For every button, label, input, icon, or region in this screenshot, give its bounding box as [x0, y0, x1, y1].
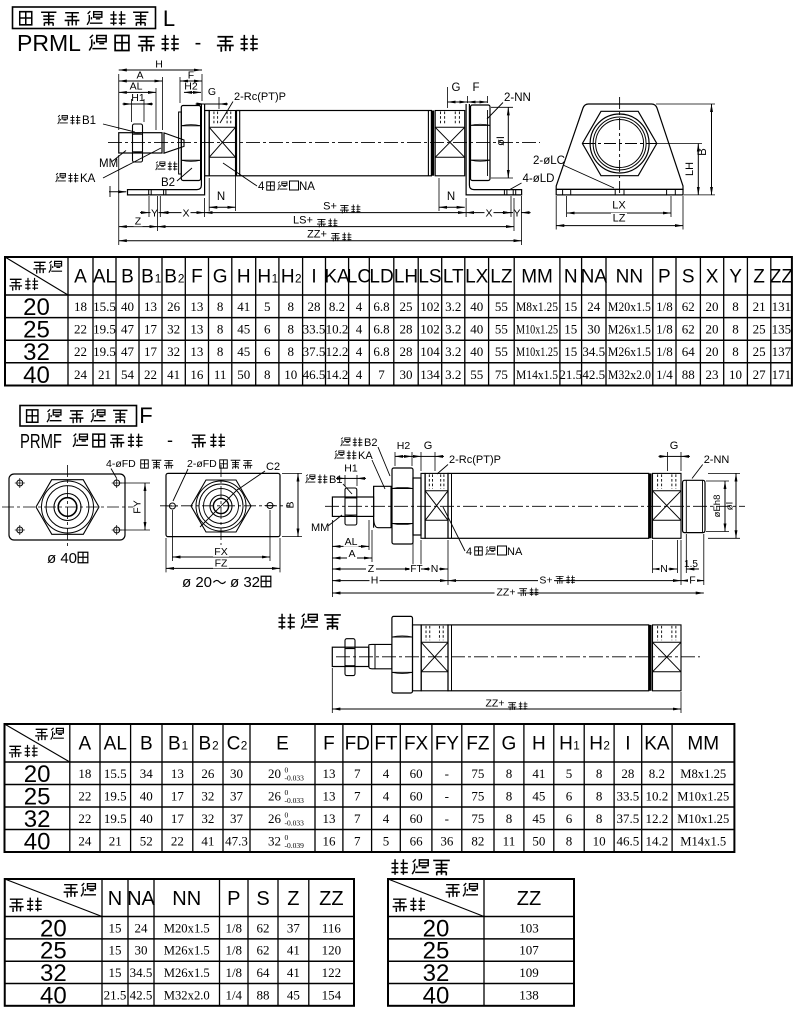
svg-text:G: G: [502, 734, 517, 755]
svg-text:Z: Z: [753, 267, 765, 288]
svg-text:11: 11: [503, 833, 516, 848]
svg-text:6.8: 6.8: [373, 322, 389, 337]
svg-text:B1: B1: [82, 115, 96, 127]
svg-text:F: F: [472, 82, 479, 94]
svg-text:40: 40: [24, 828, 51, 855]
svg-text:LX: LX: [612, 200, 626, 212]
svg-text:H: H: [589, 734, 603, 755]
svg-text:8: 8: [288, 344, 295, 359]
svg-text:28: 28: [400, 344, 413, 359]
svg-text:X: X: [485, 208, 492, 220]
svg-text:21: 21: [753, 299, 766, 314]
svg-text:62: 62: [682, 299, 695, 314]
svg-text:50: 50: [532, 833, 545, 848]
svg-text:FT: FT: [374, 734, 398, 755]
svg-text:8: 8: [566, 833, 573, 848]
svg-text:H: H: [155, 59, 163, 71]
svg-text:S+: S+: [323, 201, 337, 213]
svg-text:8.2: 8.2: [329, 299, 345, 314]
svg-text:64: 64: [257, 965, 271, 980]
svg-text:8.2: 8.2: [649, 766, 665, 781]
svg-text:4: 4: [383, 766, 390, 781]
svg-text:LH: LH: [394, 267, 418, 288]
svg-text:1/8: 1/8: [656, 299, 673, 314]
svg-text:26: 26: [167, 299, 181, 314]
svg-text:I: I: [625, 734, 630, 755]
svg-text:64: 64: [682, 344, 696, 359]
svg-text:15: 15: [564, 322, 577, 337]
svg-text:23: 23: [706, 367, 719, 382]
svg-text:FZ: FZ: [215, 558, 228, 570]
svg-text:42.5: 42.5: [130, 987, 153, 1002]
svg-text:8: 8: [288, 299, 295, 314]
svg-text:AL: AL: [93, 267, 116, 288]
svg-text:8: 8: [596, 811, 603, 826]
svg-text:LS: LS: [418, 267, 441, 288]
svg-text:13: 13: [190, 299, 203, 314]
svg-text:2: 2: [178, 273, 185, 286]
svg-text:3.2: 3.2: [445, 344, 461, 359]
svg-text:P: P: [227, 888, 240, 910]
svg-text:2-NN: 2-NN: [504, 92, 531, 104]
svg-text:øI: øI: [725, 502, 736, 510]
svg-text:40: 40: [470, 344, 483, 359]
svg-text:41: 41: [167, 367, 180, 382]
svg-text:13: 13: [322, 766, 335, 781]
svg-text:62: 62: [682, 322, 695, 337]
svg-text:45: 45: [237, 322, 250, 337]
svg-text:Z: Z: [287, 888, 299, 910]
svg-text:25: 25: [753, 344, 766, 359]
svg-text:41: 41: [287, 943, 300, 958]
svg-text:75: 75: [471, 766, 484, 781]
svg-text:62: 62: [257, 920, 270, 935]
svg-text:107: 107: [519, 943, 539, 958]
svg-text:40: 40: [470, 322, 483, 337]
svg-text:H1: H1: [344, 463, 358, 475]
svg-text:13: 13: [322, 788, 335, 803]
svg-text:G: G: [213, 267, 228, 288]
svg-text:54: 54: [121, 367, 135, 382]
svg-text:17: 17: [171, 788, 185, 803]
svg-text:75: 75: [471, 811, 484, 826]
svg-text:6.8: 6.8: [373, 299, 389, 314]
svg-text:45: 45: [287, 987, 300, 1002]
svg-text:N: N: [447, 191, 455, 203]
svg-text:32: 32: [201, 811, 214, 826]
svg-text:60: 60: [410, 811, 423, 826]
svg-text:134: 134: [420, 367, 440, 382]
svg-text:Y: Y: [729, 267, 742, 288]
svg-text:37: 37: [287, 920, 301, 935]
svg-text:AL: AL: [104, 734, 127, 755]
svg-text:NA: NA: [581, 267, 608, 288]
svg-text:G: G: [452, 82, 461, 94]
svg-text:I: I: [311, 267, 316, 288]
svg-text:21.5: 21.5: [104, 987, 127, 1002]
svg-text:8: 8: [217, 299, 224, 314]
svg-text:X: X: [182, 208, 189, 220]
svg-text:15: 15: [564, 299, 577, 314]
svg-text:28: 28: [400, 322, 413, 337]
svg-text:60: 60: [410, 788, 423, 803]
svg-text:N: N: [660, 563, 668, 575]
svg-text:4-øLD: 4-øLD: [523, 173, 555, 185]
svg-text:21: 21: [109, 833, 122, 848]
svg-text:8: 8: [732, 322, 739, 337]
svg-text:4: 4: [356, 367, 363, 382]
svg-text:S+: S+: [539, 575, 552, 587]
svg-text:1/8: 1/8: [656, 344, 673, 359]
svg-text:47: 47: [121, 344, 135, 359]
svg-text:33.5: 33.5: [617, 788, 640, 803]
svg-text:24: 24: [587, 299, 601, 314]
svg-text:28: 28: [621, 766, 634, 781]
svg-text:30: 30: [587, 322, 600, 337]
svg-text:138: 138: [519, 987, 539, 1002]
svg-text:NA: NA: [507, 546, 523, 558]
svg-text:FT: FT: [410, 564, 422, 575]
svg-text:FY: FY: [435, 734, 460, 755]
svg-text:4: 4: [383, 788, 390, 803]
svg-text:25: 25: [400, 299, 413, 314]
svg-text:6: 6: [566, 788, 573, 803]
svg-text:ZZ+: ZZ+: [486, 697, 505, 709]
svg-text:M14x1.5: M14x1.5: [680, 833, 726, 848]
svg-text:FX: FX: [214, 546, 227, 558]
svg-text:37.5: 37.5: [303, 344, 326, 359]
svg-text:14.2: 14.2: [646, 833, 669, 848]
svg-text:M20x1.5: M20x1.5: [164, 920, 210, 935]
svg-text:L: L: [163, 6, 175, 31]
svg-text:H2: H2: [184, 81, 198, 93]
svg-text:MM: MM: [99, 158, 118, 170]
svg-text:-: -: [445, 788, 449, 803]
svg-text:M8x1.25: M8x1.25: [680, 766, 726, 781]
svg-text:30: 30: [230, 766, 243, 781]
svg-text:52: 52: [140, 833, 153, 848]
svg-text:18: 18: [74, 299, 87, 314]
svg-text:19.5: 19.5: [104, 788, 127, 803]
svg-text:40: 40: [121, 299, 134, 314]
svg-text:E: E: [276, 734, 289, 755]
svg-text:M10x1.25: M10x1.25: [516, 344, 558, 359]
svg-text:ZZ: ZZ: [319, 888, 343, 910]
svg-text:26: 26: [268, 811, 282, 826]
svg-text:B: B: [164, 267, 177, 288]
svg-text:15.5: 15.5: [93, 299, 116, 314]
svg-text:40: 40: [423, 982, 450, 1009]
svg-text:H: H: [281, 267, 295, 288]
svg-text:-: -: [445, 811, 449, 826]
svg-text:47: 47: [121, 322, 135, 337]
svg-text:MM: MM: [311, 522, 329, 534]
svg-text:G: G: [208, 86, 216, 98]
svg-text:1: 1: [155, 273, 162, 286]
svg-text:22: 22: [78, 811, 91, 826]
svg-text:33.5: 33.5: [303, 322, 326, 337]
svg-text:øEh8: øEh8: [712, 495, 723, 518]
svg-text:21.5: 21.5: [559, 367, 582, 382]
svg-text:F: F: [689, 575, 695, 587]
svg-text:-0.033: -0.033: [285, 796, 305, 805]
svg-text:14.2: 14.2: [326, 367, 349, 382]
svg-text:7: 7: [378, 367, 385, 382]
svg-text:PRML: PRML: [17, 30, 81, 56]
svg-text:LH: LH: [684, 162, 696, 176]
svg-text:21: 21: [98, 367, 111, 382]
svg-text:B1: B1: [329, 474, 342, 486]
svg-text:8: 8: [732, 344, 739, 359]
svg-text:30: 30: [400, 367, 413, 382]
svg-text:H1: H1: [131, 92, 145, 104]
svg-text:20: 20: [706, 299, 719, 314]
svg-text:16: 16: [190, 367, 204, 382]
svg-text:AL: AL: [130, 81, 143, 93]
svg-text:3.2: 3.2: [445, 299, 461, 314]
svg-text:12.2: 12.2: [326, 344, 349, 359]
svg-text:NN: NN: [616, 267, 643, 288]
svg-text:10: 10: [729, 367, 742, 382]
svg-text:19.5: 19.5: [93, 322, 116, 337]
svg-text:2-øLC: 2-øLC: [533, 155, 565, 167]
svg-text:8: 8: [217, 322, 224, 337]
svg-text:B2: B2: [161, 177, 175, 189]
svg-text:24: 24: [78, 833, 92, 848]
svg-text:13: 13: [322, 811, 335, 826]
svg-text:20: 20: [706, 322, 719, 337]
svg-text:M26x1.5: M26x1.5: [608, 344, 651, 359]
svg-text:KA: KA: [80, 173, 96, 185]
svg-text:41: 41: [532, 766, 545, 781]
svg-text:7: 7: [354, 833, 361, 848]
svg-text:F: F: [139, 403, 152, 428]
svg-text:8: 8: [217, 344, 224, 359]
svg-text:M10x1.25: M10x1.25: [677, 788, 729, 803]
svg-text:75: 75: [471, 788, 484, 803]
svg-text:8: 8: [596, 788, 603, 803]
svg-text:2-Rc(PT)P: 2-Rc(PT)P: [449, 454, 501, 466]
svg-text:N: N: [431, 563, 439, 575]
svg-text:20: 20: [268, 766, 281, 781]
svg-text:LX: LX: [465, 267, 489, 288]
svg-text:10: 10: [284, 367, 297, 382]
svg-text:A: A: [79, 734, 92, 755]
svg-text:-0.033: -0.033: [285, 818, 305, 827]
svg-text:50: 50: [237, 367, 250, 382]
svg-text:8: 8: [264, 367, 271, 382]
svg-text:16: 16: [322, 833, 336, 848]
svg-text:FD: FD: [345, 734, 370, 755]
svg-text:15: 15: [109, 965, 122, 980]
svg-text:LC: LC: [347, 267, 371, 288]
svg-text:2: 2: [295, 273, 302, 286]
svg-text:ø 40: ø 40: [47, 550, 77, 567]
svg-text:13: 13: [190, 344, 203, 359]
svg-text:13: 13: [190, 322, 203, 337]
svg-text:47.3: 47.3: [225, 833, 248, 848]
svg-text:6: 6: [566, 811, 573, 826]
svg-text:3.2: 3.2: [445, 322, 461, 337]
svg-text:A: A: [348, 548, 355, 560]
svg-text:60: 60: [410, 766, 423, 781]
svg-text:41: 41: [287, 965, 300, 980]
svg-text:88: 88: [682, 367, 695, 382]
svg-text:45: 45: [532, 788, 545, 803]
svg-text:37.5: 37.5: [617, 811, 640, 826]
svg-text:46.5: 46.5: [303, 367, 326, 382]
svg-text:PRMF: PRMF: [20, 431, 62, 453]
svg-text:H: H: [559, 734, 573, 755]
svg-text:40: 40: [140, 788, 153, 803]
svg-text:H2: H2: [397, 440, 411, 452]
svg-text:32: 32: [268, 833, 281, 848]
svg-text:41: 41: [237, 299, 250, 314]
svg-text:131: 131: [772, 299, 792, 314]
svg-text:B: B: [168, 734, 181, 755]
svg-text:Y: Y: [151, 208, 158, 220]
svg-text:B: B: [285, 501, 297, 508]
svg-text:88: 88: [257, 987, 270, 1002]
svg-text:22: 22: [74, 322, 87, 337]
svg-text:27: 27: [753, 367, 767, 382]
svg-text:H: H: [237, 267, 251, 288]
svg-text:32: 32: [167, 344, 180, 359]
svg-text:Z: Z: [135, 216, 142, 228]
svg-text:120: 120: [322, 943, 342, 958]
svg-text:-0.033: -0.033: [285, 773, 305, 782]
svg-text:34.5: 34.5: [582, 344, 605, 359]
svg-text:1.5: 1.5: [684, 559, 698, 570]
svg-text:5: 5: [566, 766, 573, 781]
svg-text:55: 55: [495, 344, 508, 359]
svg-text:M10x1.25: M10x1.25: [516, 322, 558, 337]
svg-text:26: 26: [268, 788, 282, 803]
svg-text:135: 135: [772, 322, 792, 337]
svg-text:12.2: 12.2: [646, 811, 669, 826]
svg-text:M10x1.25: M10x1.25: [677, 811, 729, 826]
svg-text:H: H: [371, 575, 379, 587]
svg-text:17: 17: [144, 322, 158, 337]
svg-text:1: 1: [272, 273, 279, 286]
svg-text:øI: øI: [495, 136, 507, 146]
svg-text:4: 4: [258, 181, 265, 193]
svg-text:M32x2.0: M32x2.0: [164, 987, 210, 1002]
svg-text:N: N: [564, 267, 578, 288]
svg-text:M32x2.0: M32x2.0: [608, 367, 651, 382]
svg-text:F: F: [191, 267, 203, 288]
svg-text:H: H: [532, 734, 546, 755]
svg-text:LS+: LS+: [293, 215, 313, 227]
svg-text:-0.039: -0.039: [285, 841, 305, 850]
svg-text:B: B: [199, 734, 212, 755]
svg-text:LD: LD: [369, 267, 393, 288]
svg-text:36: 36: [440, 833, 454, 848]
svg-text:75: 75: [495, 367, 508, 382]
svg-text:1/8: 1/8: [225, 943, 242, 958]
svg-text:NA: NA: [127, 888, 155, 910]
svg-text:M20x1.5: M20x1.5: [608, 299, 651, 314]
svg-text:22: 22: [171, 833, 184, 848]
svg-text:22: 22: [144, 367, 157, 382]
svg-text:109: 109: [519, 965, 539, 980]
svg-text:6: 6: [264, 322, 271, 337]
svg-text:46.5: 46.5: [617, 833, 640, 848]
svg-text:1: 1: [573, 740, 580, 753]
svg-text:8: 8: [506, 766, 513, 781]
svg-text:45: 45: [237, 344, 250, 359]
svg-text:C: C: [227, 734, 241, 755]
svg-text:2: 2: [603, 740, 610, 753]
svg-text:10.2: 10.2: [646, 788, 669, 803]
svg-text:18: 18: [78, 766, 91, 781]
svg-text:6.8: 6.8: [373, 344, 389, 359]
svg-text:ZZ: ZZ: [517, 888, 541, 910]
svg-text:Y: Y: [513, 208, 520, 220]
svg-text:7: 7: [354, 766, 361, 781]
svg-text:ZZ+: ZZ+: [497, 587, 516, 599]
svg-text:ø 20: ø 20: [182, 574, 212, 591]
svg-text:4-øFD: 4-øFD: [106, 458, 136, 470]
svg-text:LZ: LZ: [490, 267, 513, 288]
svg-text:B: B: [140, 734, 153, 755]
svg-text:37: 37: [230, 811, 244, 826]
svg-text:4: 4: [466, 546, 472, 558]
svg-text:5: 5: [264, 299, 271, 314]
svg-text:62: 62: [257, 943, 270, 958]
svg-text:19.5: 19.5: [93, 344, 116, 359]
svg-text:82: 82: [471, 833, 484, 848]
svg-text:A: A: [74, 267, 87, 288]
svg-text:1: 1: [182, 740, 189, 753]
svg-text:5: 5: [383, 833, 390, 848]
svg-text:8: 8: [288, 322, 295, 337]
svg-text:FX: FX: [404, 734, 429, 755]
svg-text:13: 13: [144, 299, 157, 314]
svg-text:M26x1.5: M26x1.5: [608, 322, 651, 337]
svg-text:26: 26: [201, 766, 215, 781]
svg-text:6: 6: [264, 344, 271, 359]
svg-text:24: 24: [135, 920, 149, 935]
svg-text:H: H: [257, 267, 271, 288]
svg-text:S: S: [256, 888, 269, 910]
svg-text:122: 122: [322, 965, 342, 980]
svg-text:30: 30: [135, 943, 148, 958]
svg-text:104: 104: [420, 344, 440, 359]
svg-text:24: 24: [74, 367, 88, 382]
svg-text:1/4: 1/4: [225, 987, 242, 1002]
svg-text:MM: MM: [687, 734, 719, 755]
svg-text:1/8: 1/8: [656, 322, 673, 337]
svg-text:22: 22: [78, 788, 91, 803]
svg-text:40: 40: [40, 982, 67, 1009]
svg-text:ZZ+: ZZ+: [307, 229, 327, 241]
svg-text:2-NN: 2-NN: [704, 454, 730, 466]
svg-text:ZZ: ZZ: [770, 267, 794, 288]
svg-text:15: 15: [109, 943, 122, 958]
svg-text:1/8: 1/8: [225, 920, 242, 935]
svg-text:34.5: 34.5: [130, 965, 153, 980]
svg-text:41: 41: [201, 833, 214, 848]
svg-text:7: 7: [354, 811, 361, 826]
svg-text:FY: FY: [132, 500, 144, 513]
svg-text:N: N: [108, 888, 122, 910]
svg-text:102: 102: [420, 299, 440, 314]
svg-text:2-Rc(PT)P: 2-Rc(PT)P: [234, 91, 286, 103]
svg-text:10.2: 10.2: [326, 322, 349, 337]
svg-text:45: 45: [532, 811, 545, 826]
svg-text:1/4: 1/4: [656, 367, 673, 382]
